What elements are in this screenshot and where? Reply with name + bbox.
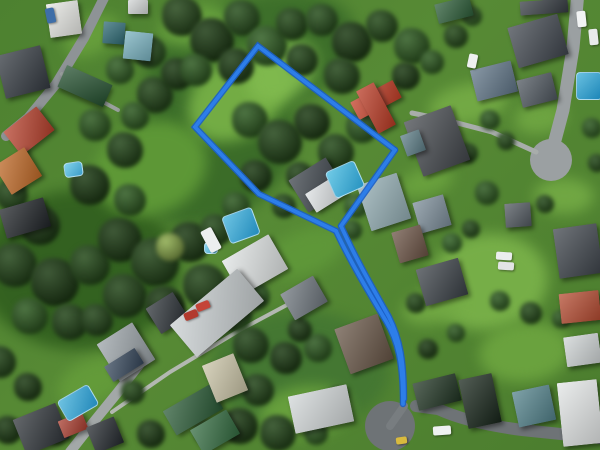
tree-canopy [420, 50, 444, 74]
building-roof [507, 14, 569, 69]
tree-canopy [444, 24, 468, 48]
cul-de-sac [530, 139, 572, 181]
building-roof [0, 45, 51, 99]
tree-canopy [137, 420, 165, 448]
tree-canopy [276, 8, 308, 40]
building-roof [563, 333, 600, 368]
tree-canopy [462, 220, 480, 238]
tree-canopy [81, 304, 113, 336]
tree-canopy [582, 118, 600, 138]
tree-canopy [260, 415, 296, 450]
tree-canopy [447, 324, 465, 342]
building-roof [3, 106, 55, 155]
tree-canopy [520, 302, 542, 324]
swimming-pool [576, 72, 600, 100]
tree-canopy [324, 58, 360, 94]
vehicle [396, 436, 408, 444]
tree-canopy [286, 44, 318, 76]
building-roof [504, 202, 532, 228]
building-roof [512, 384, 557, 427]
building-roof [412, 373, 461, 411]
tree-canopy [442, 233, 462, 253]
tree-canopy [270, 342, 302, 374]
tree-canopy [288, 318, 312, 342]
tree-canopy [240, 160, 272, 192]
grass-patch [512, 99, 568, 138]
building-roof [57, 65, 112, 107]
building-roof [86, 416, 124, 450]
building-roof [559, 290, 600, 324]
tree-canopy [497, 132, 515, 150]
tree-canopy [490, 291, 510, 311]
tree-canopy [79, 109, 111, 141]
tree-canopy [294, 104, 330, 140]
driveway [390, 406, 404, 426]
tree-canopy [180, 54, 212, 86]
cul-de-sac [365, 401, 415, 450]
tree-canopy [14, 373, 42, 401]
tree-canopy [272, 194, 296, 218]
tree-canopy [121, 380, 145, 404]
building-roof [123, 31, 154, 62]
tree-canopy [218, 48, 254, 84]
building-roof [557, 379, 600, 447]
tree-canopy [536, 195, 554, 213]
tree-canopy [475, 181, 499, 205]
building-roof [102, 21, 125, 44]
building-roof [520, 0, 569, 16]
tree-canopy [106, 56, 134, 84]
building-roof [128, 0, 148, 14]
building-roof [553, 223, 600, 279]
tree-canopy [114, 184, 146, 216]
aerial-photo [0, 0, 600, 450]
vehicle [467, 53, 479, 69]
tree-canopy [366, 10, 398, 42]
vehicle [498, 261, 515, 270]
swimming-pool [63, 161, 84, 178]
tree-canopy [480, 110, 500, 130]
tree-canopy [12, 298, 48, 334]
tree-canopy [156, 233, 184, 261]
building-roof [0, 147, 42, 195]
tree-canopy [418, 339, 438, 359]
tree-canopy [392, 62, 420, 90]
vehicle [433, 425, 452, 435]
building-roof [458, 373, 502, 429]
tree-canopy [342, 220, 362, 240]
building-roof [470, 60, 518, 101]
tree-canopy [107, 132, 143, 168]
tree-canopy [233, 327, 269, 363]
vehicle [588, 29, 599, 46]
vehicle [496, 251, 513, 260]
tree-canopy [588, 154, 600, 172]
tree-canopy [0, 346, 16, 378]
tree-canopy [121, 102, 149, 130]
vehicle [576, 11, 587, 28]
